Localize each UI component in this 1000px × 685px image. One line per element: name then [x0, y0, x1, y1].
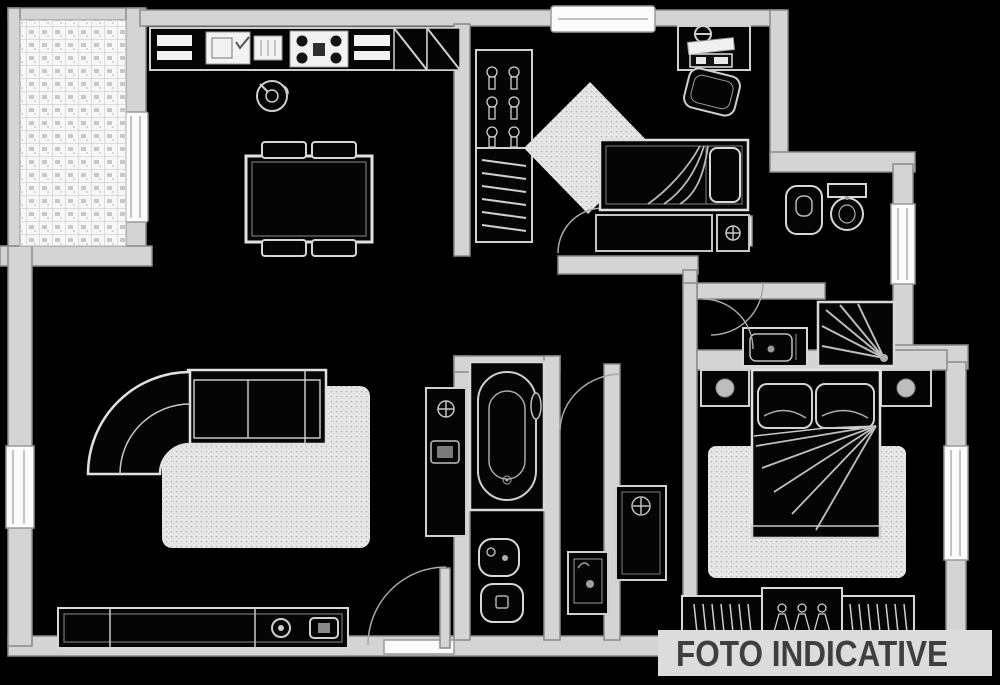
watermark-text: FOTO INDICATIVE: [676, 633, 948, 674]
chair-icon: [262, 142, 306, 158]
midbath-right-wall: [544, 356, 560, 640]
floorplan-canvas: FOTO INDICATIVE: [0, 0, 1000, 685]
counter-shelf: [157, 35, 192, 46]
washing-machine-icon: [616, 486, 666, 580]
corridor-cabinet: [568, 552, 608, 614]
pillow-icon: [710, 148, 740, 202]
bedroom-left-wall: [683, 283, 697, 640]
nightstand-icon: [701, 370, 749, 406]
table-lamp-icon: [716, 379, 734, 397]
drainer-icon: [254, 36, 282, 60]
door-swing-arc: [368, 567, 446, 645]
terrace-left-wall: [8, 8, 20, 256]
chair-icon: [312, 142, 356, 158]
bathroom-window: [891, 204, 915, 284]
top-wall-kitchen: [140, 10, 558, 26]
bidet-icon: [479, 539, 519, 576]
living-room: [58, 370, 450, 648]
bedroom-window: [944, 446, 968, 560]
hall-bottom-wall: [558, 256, 698, 274]
floorplan-drawing: FOTO INDICATIVE: [0, 0, 1000, 685]
toilet-icon: [828, 184, 866, 230]
bathroom-top: [703, 184, 894, 366]
corner-cabinet-icon: [394, 28, 460, 70]
office-chair-icon: [682, 66, 742, 117]
kettle-icon: [257, 81, 288, 111]
right-wall-upper: [770, 10, 788, 164]
top-wall-right: [651, 10, 783, 26]
stove-burners-icon: [290, 31, 348, 67]
terrace-top-wall: [8, 8, 144, 20]
flower-icon: [726, 226, 740, 240]
kitchen: [150, 28, 460, 256]
pillow-icon: [758, 384, 812, 428]
counter-shelf: [354, 51, 390, 60]
terrace-door: [124, 112, 148, 222]
terrace-tile-floor: [20, 20, 126, 246]
counter-shelf: [354, 35, 390, 46]
bed-bench: [596, 215, 712, 251]
bathtub-icon: [470, 362, 544, 510]
toilet-icon: [481, 584, 523, 622]
pillow-icon: [816, 384, 874, 428]
chair-icon: [262, 240, 306, 256]
dining-table-icon: [246, 156, 372, 242]
double-bed-icon: [752, 370, 880, 538]
entrance-door: [551, 6, 655, 32]
living-window: [6, 446, 34, 528]
desk-icon: [678, 26, 750, 70]
flower-icon: [438, 401, 454, 417]
chair-icon: [312, 240, 356, 256]
tv-sideboard-icon: [58, 608, 348, 648]
counter-shelf: [157, 51, 192, 60]
hall-closet: [476, 50, 532, 242]
master-bedroom: [682, 370, 931, 646]
shower-spray-icon: [818, 302, 894, 366]
watermark-band: FOTO INDICATIVE: [658, 630, 992, 676]
table-lamp-icon: [897, 379, 915, 397]
single-bed-icon: [600, 140, 748, 210]
nightstand-icon: [881, 370, 931, 406]
nightstand-icon: [717, 215, 749, 251]
living-cabinet: [426, 388, 466, 536]
kitchen-sink-icon: [206, 32, 250, 64]
door-leaf: [440, 568, 450, 648]
bidet-icon: [786, 186, 822, 234]
